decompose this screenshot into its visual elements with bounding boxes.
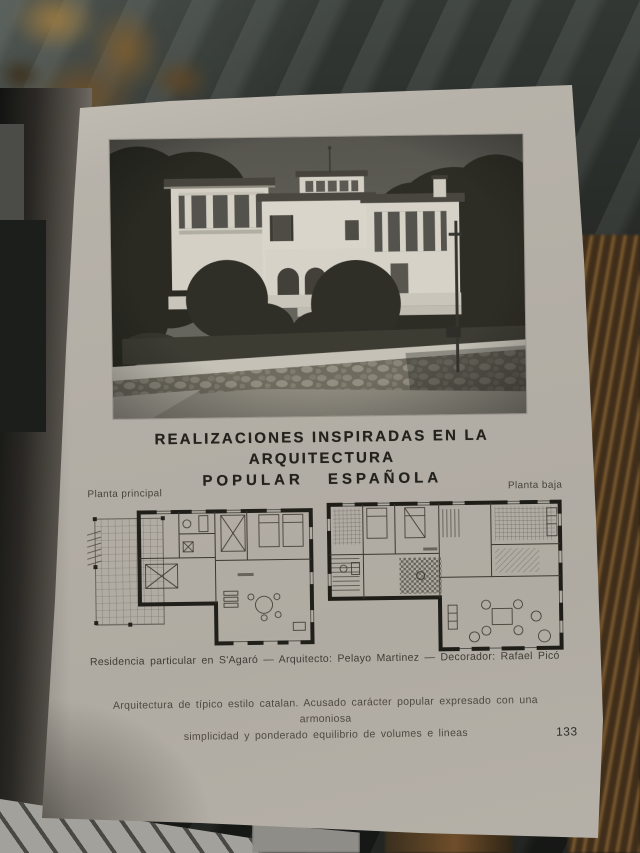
- beds-and-fixtures: [145, 514, 306, 632]
- description-line-2: simplicidad y ponderado equilibrio de vo…: [184, 727, 468, 743]
- page-content: REALIZACIONES INSPIRADAS EN LA ARQUITECT…: [0, 0, 640, 853]
- floor-plan-baja: [323, 496, 568, 657]
- left-page-highlight: [0, 124, 24, 224]
- title-line-1: REALIZACIONES INSPIRADAS EN LA ARQUITECT…: [82, 424, 563, 473]
- plan-label-baja: Planta baja: [470, 480, 562, 492]
- plan-label-principal: Planta principal: [87, 488, 162, 500]
- description-paragraph: Arquitectura de típico estilo catalan. A…: [85, 692, 566, 747]
- villa-photo: [110, 134, 527, 419]
- photo-credit-caption: Residencia particular en S'Agaró — Arqui…: [85, 650, 565, 669]
- page-number: 133: [547, 724, 587, 739]
- left-page-dark-photo: [0, 220, 46, 432]
- floor-plan-principal: [87, 502, 317, 653]
- book-page: REALIZACIONES INSPIRADAS EN LA ARQUITECT…: [0, 0, 640, 853]
- book-photograph: REALIZACIONES INSPIRADAS EN LA ARQUITECT…: [0, 0, 640, 853]
- description-line-1: Arquitectura de típico estilo catalan. A…: [113, 694, 538, 725]
